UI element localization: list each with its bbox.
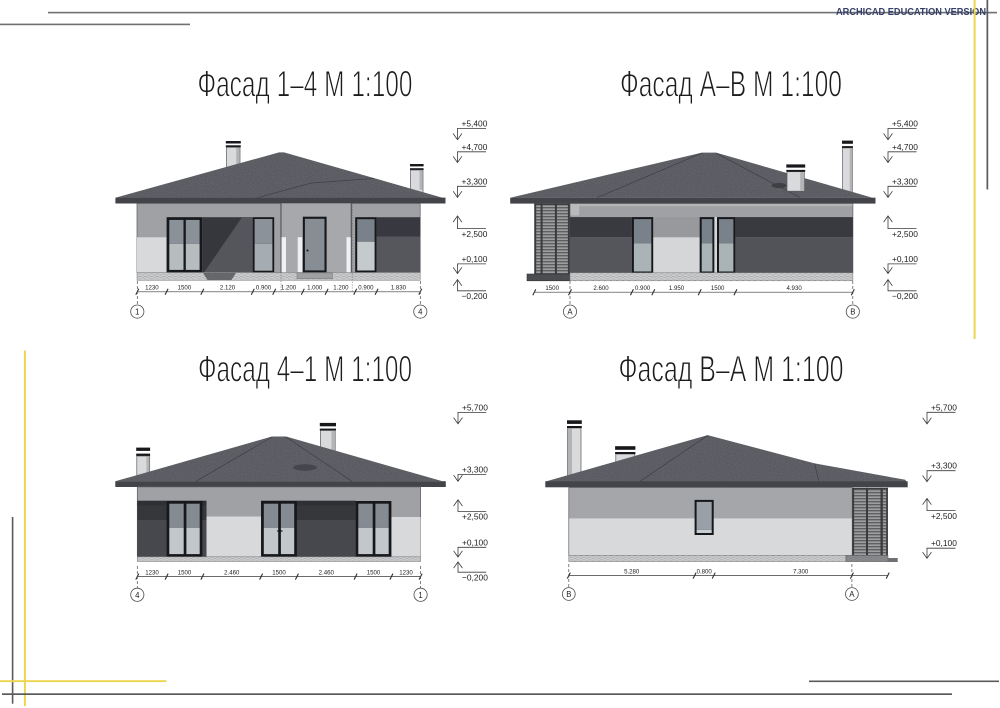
svg-text:Фасад А–В М 1:100: Фасад А–В М 1:100	[620, 63, 842, 104]
svg-text:+0,100: +0,100	[462, 254, 488, 264]
svg-text:А: А	[849, 590, 855, 599]
svg-text:7.300: 7.300	[793, 568, 809, 575]
svg-text:+5,700: +5,700	[462, 402, 488, 412]
svg-text:+0,100: +0,100	[892, 254, 918, 264]
svg-text:1500: 1500	[272, 569, 286, 576]
svg-text:−0,200: −0,200	[462, 291, 488, 301]
svg-text:1500: 1500	[178, 285, 192, 292]
svg-text:1500: 1500	[367, 569, 381, 576]
svg-text:А: А	[567, 308, 573, 317]
svg-text:В: В	[566, 590, 571, 599]
svg-text:2.600: 2.600	[593, 285, 609, 292]
svg-text:+0,100: +0,100	[462, 537, 488, 547]
svg-text:0.900: 0.900	[635, 285, 651, 292]
svg-text:1: 1	[135, 308, 139, 317]
svg-text:В: В	[850, 308, 855, 317]
svg-text:2.460: 2.460	[319, 569, 335, 576]
svg-text:+3,300: +3,300	[462, 176, 488, 186]
svg-text:2.120: 2.120	[220, 285, 236, 292]
svg-text:+2,500: +2,500	[462, 512, 488, 522]
svg-text:−0,200: −0,200	[892, 291, 918, 301]
svg-text:+0,100: +0,100	[931, 538, 957, 548]
svg-text:1230: 1230	[145, 569, 159, 576]
svg-text:1.200: 1.200	[281, 285, 297, 292]
svg-text:+2,500: +2,500	[931, 511, 957, 521]
svg-text:4.930: 4.930	[786, 285, 802, 292]
svg-text:1230: 1230	[399, 569, 413, 576]
svg-text:+2,500: +2,500	[462, 229, 488, 239]
svg-text:1500: 1500	[545, 285, 559, 292]
svg-text:1.200: 1.200	[333, 285, 349, 292]
svg-text:+3,300: +3,300	[892, 176, 918, 186]
svg-text:Фасад В–А М 1:100: Фасад В–А М 1:100	[619, 348, 844, 389]
svg-text:5.280: 5.280	[624, 568, 640, 575]
svg-text:+4,700: +4,700	[462, 142, 488, 152]
svg-text:−0,200: −0,200	[462, 572, 488, 582]
svg-text:ARCHICAD EDUCATION VERSION: ARCHICAD EDUCATION VERSION	[836, 7, 986, 18]
svg-text:+5,700: +5,700	[931, 402, 957, 412]
svg-text:1230: 1230	[145, 285, 159, 292]
svg-text:1.830: 1.830	[391, 285, 407, 292]
svg-text:0.800: 0.800	[697, 568, 713, 575]
svg-text:2.460: 2.460	[224, 569, 240, 576]
svg-text:+5,400: +5,400	[892, 118, 918, 128]
svg-text:0.900: 0.900	[256, 285, 272, 292]
svg-text:0.900: 0.900	[358, 285, 374, 292]
svg-text:4: 4	[135, 591, 140, 600]
svg-text:Фасад 4–1 М 1:100: Фасад 4–1 М 1:100	[198, 348, 412, 389]
svg-text:+4,700: +4,700	[892, 142, 918, 152]
svg-text:+5,400: +5,400	[462, 118, 488, 128]
svg-text:1500: 1500	[178, 569, 192, 576]
svg-text:1500: 1500	[711, 285, 725, 292]
svg-text:1.950: 1.950	[669, 285, 685, 292]
svg-text:+3,300: +3,300	[462, 465, 488, 475]
svg-text:4: 4	[418, 308, 423, 317]
svg-text:+2,500: +2,500	[892, 229, 918, 239]
svg-text:1: 1	[418, 591, 422, 600]
svg-text:Фасад 1–4 М 1:100: Фасад 1–4 М 1:100	[198, 63, 413, 104]
svg-text:+3,300: +3,300	[931, 461, 957, 471]
svg-text:1.000: 1.000	[307, 285, 323, 292]
